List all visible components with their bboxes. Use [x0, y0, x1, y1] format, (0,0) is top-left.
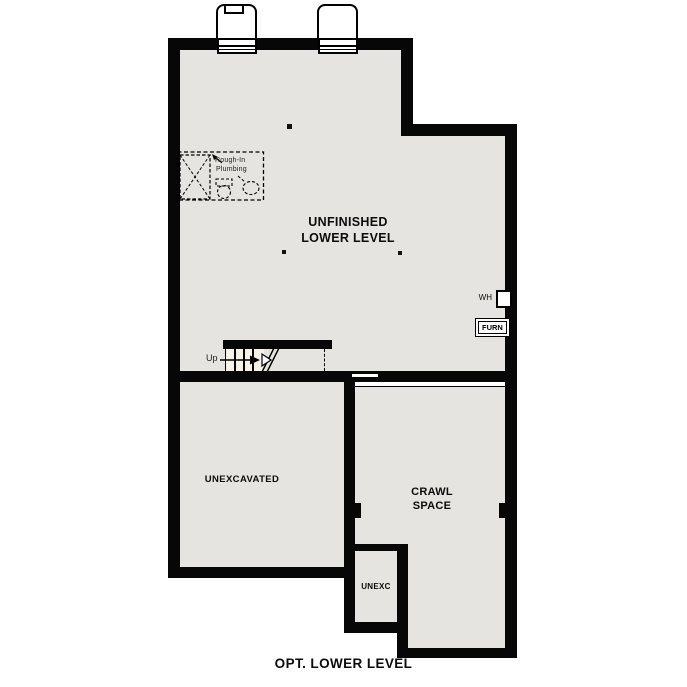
stair-direction-arrow: [200, 340, 340, 380]
unexc-label: UNEXC: [352, 582, 400, 591]
pier-left: [355, 503, 361, 518]
wall-step: [401, 124, 517, 136]
plan-title: OPT. LOWER LEVEL: [0, 656, 687, 671]
right-window-icon: [318, 38, 358, 54]
left-window-icon: [217, 38, 257, 54]
wall-left: [168, 38, 180, 578]
column-dot: [398, 251, 402, 255]
toilet-bowl-icon: [218, 186, 231, 199]
plumbing-note-line2: Plumbing: [216, 166, 247, 173]
crawl-space-label: CRAWL SPACE: [392, 485, 472, 513]
floor-crawl-lower: [402, 550, 511, 648]
floor-plan: Rough-In Plumbing Up WH FURN UNFINISHED …: [0, 0, 687, 687]
wall-upper-right: [401, 38, 413, 136]
sink-icon: [243, 182, 259, 195]
window-glass-line: [219, 49, 255, 51]
column-dot: [282, 250, 286, 254]
water-heater-label: WH: [466, 293, 492, 302]
arrowhead-icon: [250, 356, 260, 365]
plumbing-note-line1: Rough-In: [215, 157, 245, 164]
unfinished-lower-level-label: UNFINISHED LOWER LEVEL: [268, 214, 428, 246]
wall-unexcavated-bottom: [168, 567, 355, 578]
wall-right: [505, 124, 517, 658]
crawl-access-opening: [352, 374, 378, 377]
window-glass-line: [320, 45, 356, 47]
crawl-top-double-line: [355, 382, 505, 387]
window-glass-line: [219, 45, 255, 47]
room-label-line2: LOWER LEVEL: [268, 230, 428, 246]
floor-unfinished-right: [401, 130, 511, 377]
floor-crawl-upper: [350, 377, 511, 552]
wall-unexc-bottom: [344, 622, 408, 633]
wall-unexc-right: [397, 544, 408, 658]
right-window-well-icon: [317, 4, 358, 38]
room-label-line1: UNFINISHED: [268, 214, 428, 230]
window-glass-line: [320, 49, 356, 51]
furnace-label: FURN: [478, 321, 507, 334]
wall-top: [168, 38, 413, 50]
column-dot: [287, 124, 292, 129]
left-window-well-ladder-icon: [224, 6, 244, 14]
floor-unfinished-upper: [174, 44, 408, 377]
toilet-tank-icon: [216, 179, 232, 186]
furnace-box: FURN: [475, 318, 510, 337]
water-heater-box: [496, 290, 512, 308]
pier-right: [499, 503, 505, 518]
room-label-line1: CRAWL: [392, 485, 472, 499]
unexcavated-label: UNEXCAVATED: [172, 474, 312, 485]
wall-divider: [344, 371, 355, 633]
room-label-line2: SPACE: [392, 499, 472, 513]
